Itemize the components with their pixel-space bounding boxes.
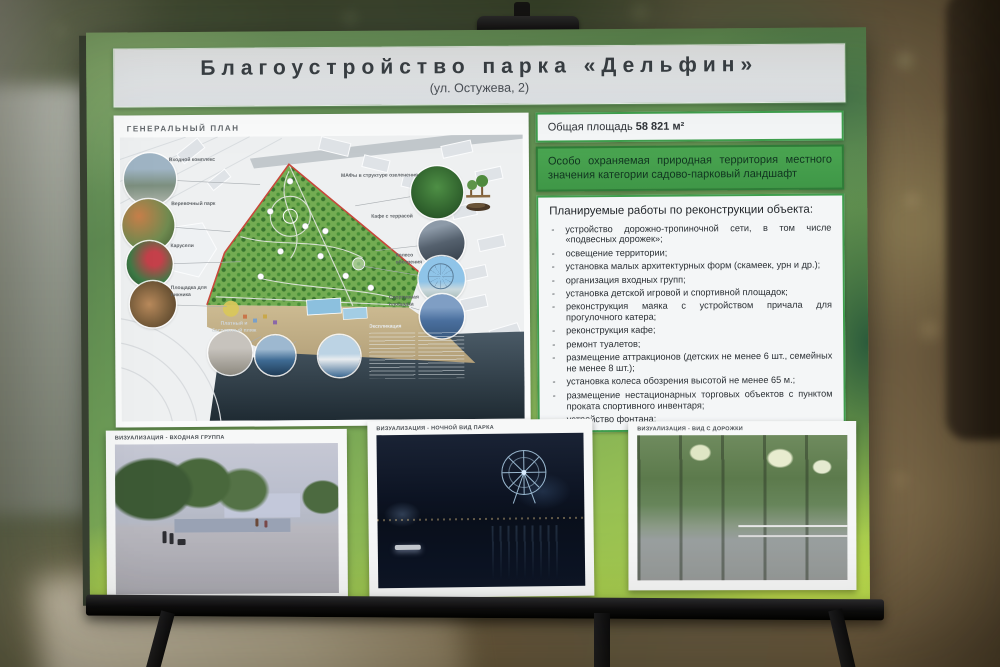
legend-column-2 <box>418 332 464 378</box>
work-item: установка малых архитектурных форм (скам… <box>550 260 832 273</box>
planned-works-box: Планируемые работы по реконструкции объе… <box>536 193 846 432</box>
ferris-wheel-night <box>492 445 555 508</box>
visualization-path-caption: ВИЗУАЛИЗАЦИЯ - ВИД С ДОРОЖКИ <box>637 426 743 432</box>
person-figure <box>256 519 259 527</box>
planned-works-title: Планируемые работы по реконструкции объе… <box>549 203 831 217</box>
callout-label-maf: МАФы в структуре озеленения <box>341 172 423 179</box>
total-area-box: Общая площадь 58 821 м² <box>536 110 844 142</box>
poster-board: Благоустройство парка «Дельфин» (ул. Ост… <box>86 27 870 604</box>
ferris-wheel-marker <box>353 258 365 270</box>
poster-subtitle: (ул. Остужева, 2) <box>114 78 844 97</box>
boat <box>394 545 420 550</box>
callout-label-cafe: Кафе с террасой <box>371 213 413 220</box>
work-item: установка детской игровой и спортивной п… <box>550 286 832 299</box>
string-lights <box>377 517 584 522</box>
legend-column-1 <box>369 332 415 378</box>
callout-pier-photo <box>255 335 295 375</box>
background-curb <box>0 85 90 515</box>
work-item: ремонт туалетов; <box>550 337 832 350</box>
work-item: реконструкция кафе; <box>550 324 832 337</box>
general-plan-panel: ГЕНЕРАЛЬНЫЙ ПЛАН <box>114 113 531 428</box>
callout-label-beach: Платный и бесплатный пляж <box>208 321 260 335</box>
total-area-label: Общая площадь <box>548 121 633 134</box>
stroller-figure <box>178 539 186 545</box>
photo-scene: Благоустройство парка «Дельфин» (ул. Ост… <box>0 0 1000 667</box>
pool <box>307 298 342 315</box>
callout-picnic-photo <box>130 281 176 327</box>
tree-trunk <box>946 0 1000 440</box>
visualization-entrance-image <box>115 443 339 595</box>
poster-title-bar: Благоустройство парка «Дельфин» (ул. Ост… <box>113 43 845 107</box>
general-plan-header: ГЕНЕРАЛЬНЫЙ ПЛАН <box>127 124 240 134</box>
work-item: установка колеса обозрения высотой не ме… <box>550 375 832 388</box>
callout-label-carousels: Карусели <box>170 243 193 250</box>
planned-works-list: устройство дорожно-тропиночной сети, в т… <box>549 222 833 432</box>
total-area-value: 58 821 м² <box>636 121 685 133</box>
work-item: размещение аттракционов (детских не мене… <box>550 351 832 375</box>
callout-beach-photo <box>208 331 252 375</box>
work-item: устройство дорожно-тропиночной сети, в т… <box>549 222 831 246</box>
info-column: Общая площадь 58 821 м² Особо охраняемая… <box>536 110 846 432</box>
person-figure <box>169 533 173 544</box>
pool-small <box>343 307 368 319</box>
water-reflection <box>491 525 562 581</box>
callout-boat-photo <box>318 335 360 377</box>
protected-territory-box: Особо охраняемая природная территория ме… <box>536 144 844 191</box>
work-item: организация входных групп; <box>550 273 832 286</box>
visualization-night-image <box>376 433 585 589</box>
work-item: освещение территории; <box>550 246 832 259</box>
callout-label-picnic: Площадка для пикника <box>171 285 213 299</box>
callout-label-sport: Спортивная площадка <box>389 294 425 308</box>
visualization-path-card: ВИЗУАЛИЗАЦИЯ - ВИД С ДОРОЖКИ <box>628 421 856 590</box>
work-item: реконструкция маяка с устройством причал… <box>550 300 832 324</box>
person-figure <box>162 531 166 543</box>
visualization-entrance-card: ВИЗУАЛИЗАЦИЯ - ВХОДНАЯ ГРУППА <box>106 429 348 605</box>
work-item: размещение нестационарных торговых объек… <box>551 388 833 412</box>
easel-leg-center <box>594 613 610 667</box>
callout-label-rope-park: Веревочный парк <box>171 201 215 208</box>
page-title: Благоустройство парка «Дельфин» <box>114 52 844 81</box>
visualization-entrance-caption: ВИЗУАЛИЗАЦИЯ - ВХОДНАЯ ГРУППА <box>115 435 225 442</box>
picnic-glade <box>223 301 239 317</box>
callout-label-ferris-wheel: Колесо обозрения <box>396 252 428 266</box>
visualization-path-image <box>637 435 847 580</box>
person-figure <box>265 520 268 527</box>
visualization-night-caption: ВИЗУАЛИЗАЦИЯ - НОЧНОЙ ВИД ПАРКА <box>376 425 494 432</box>
legend-title: Экспликация <box>369 324 401 331</box>
callout-label-entrance: Входной комплекс <box>169 157 215 164</box>
visualization-night-card: ВИЗУАЛИЗАЦИЯ - НОЧНОЙ ВИД ПАРКА <box>367 419 594 599</box>
